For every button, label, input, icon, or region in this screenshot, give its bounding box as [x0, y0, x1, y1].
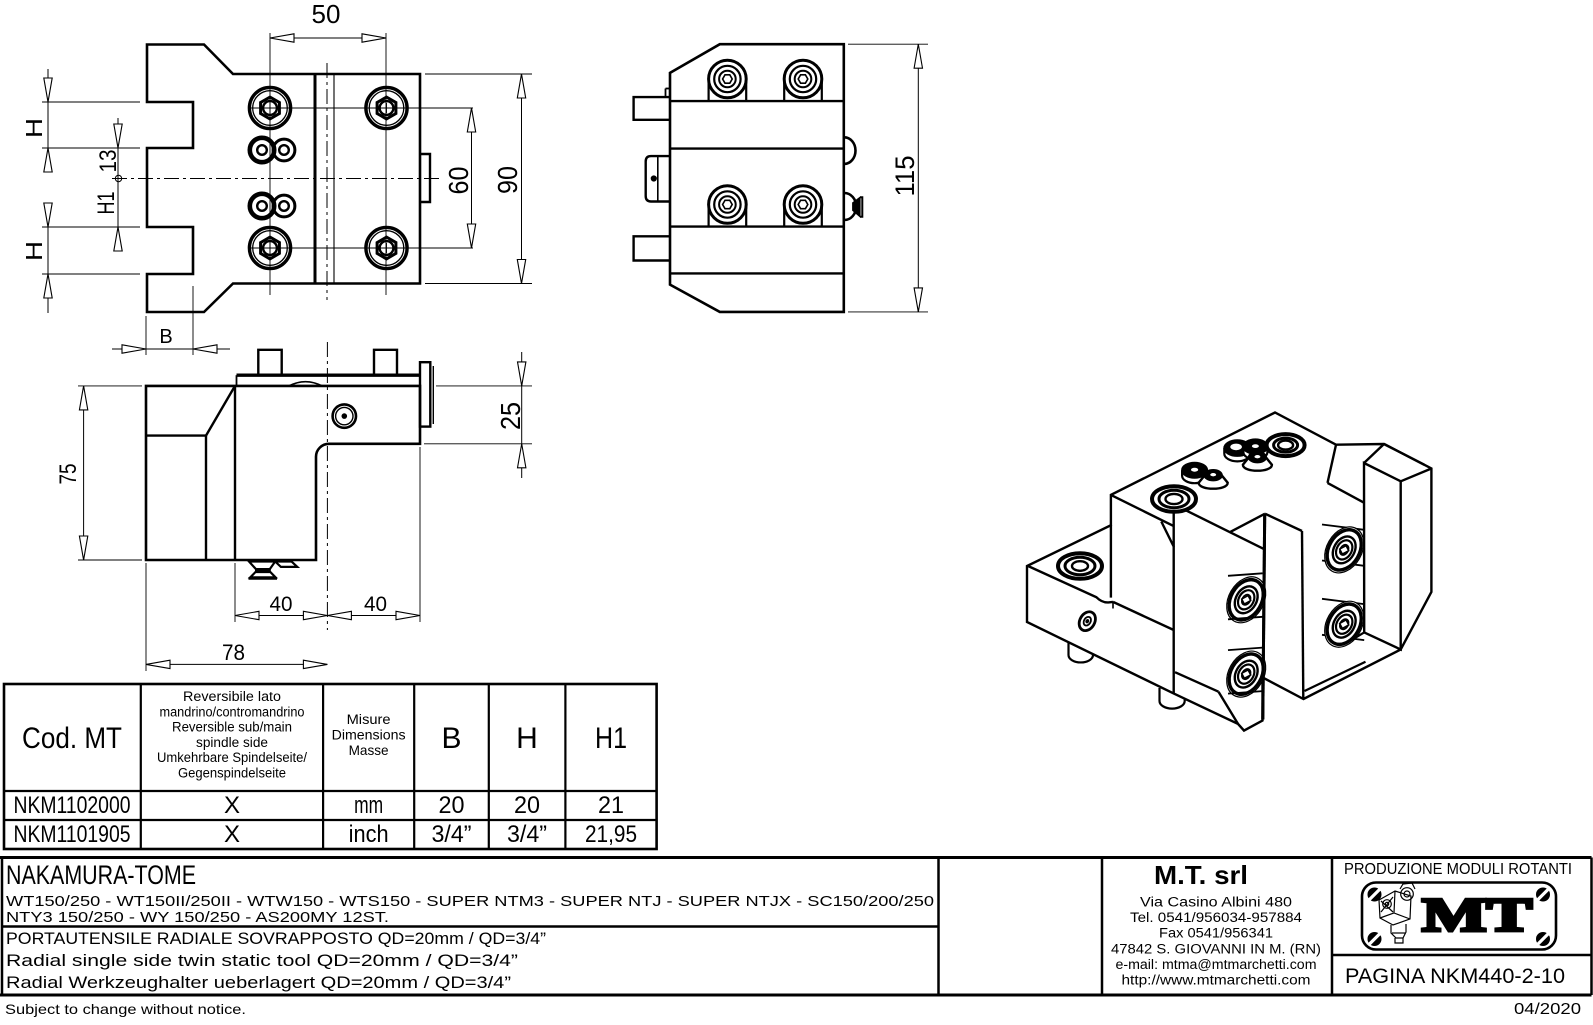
svg-text:21,95: 21,95 [585, 821, 637, 848]
svg-text:78: 78 [222, 640, 245, 665]
svg-text:Radial single side twin static: Radial single side twin static tool QD=2… [6, 951, 518, 970]
svg-text:e-mail: mtma@mtmarchetti.com: e-mail: mtma@mtmarchetti.com [1116, 957, 1317, 972]
svg-text:H: H [21, 118, 47, 138]
svg-text:H: H [21, 241, 47, 261]
svg-text:3/4”: 3/4” [507, 821, 547, 848]
svg-text:inch: inch [349, 821, 389, 848]
svg-text:H: H [516, 722, 538, 755]
svg-text:MT: MT [1422, 889, 1532, 942]
svg-text:http://www.mtmarchetti.com: http://www.mtmarchetti.com [1122, 973, 1311, 988]
svg-text:H1: H1 [93, 192, 120, 215]
svg-text:Via Casino Albini 480: Via Casino Albini 480 [1140, 895, 1292, 910]
svg-text:M.T. srl: M.T. srl [1154, 860, 1248, 890]
svg-text:20: 20 [514, 792, 540, 819]
svg-text:NAKAMURA-TOME: NAKAMURA-TOME [6, 860, 196, 890]
svg-text:Umkehrbare Spindelseite/: Umkehrbare Spindelseite/ [157, 750, 307, 765]
svg-text:H1: H1 [595, 722, 627, 755]
svg-text:PAGINA NKM440-2-10: PAGINA NKM440-2-10 [1345, 965, 1565, 988]
svg-text:40: 40 [364, 593, 387, 616]
svg-text:13: 13 [95, 150, 122, 173]
svg-text:20: 20 [439, 792, 465, 819]
svg-text:21: 21 [598, 792, 624, 819]
svg-text:Gegenspindelseite: Gegenspindelseite [178, 766, 286, 781]
svg-text:PRODUZIONE MODULI ROTANTI: PRODUZIONE MODULI ROTANTI [1344, 861, 1572, 878]
svg-text:Cod. MT: Cod. MT [22, 722, 122, 755]
svg-text:47842 S. GIOVANNI IN M. (RN): 47842 S. GIOVANNI IN M. (RN) [1111, 941, 1321, 956]
svg-text:X: X [224, 821, 240, 848]
svg-text:50: 50 [312, 0, 341, 29]
svg-text:B: B [159, 326, 172, 348]
svg-text:Masse: Masse [349, 742, 389, 758]
svg-text:Reversibile lato: Reversibile lato [183, 689, 281, 704]
svg-text:Tel. 0541/956034-957884: Tel. 0541/956034-957884 [1130, 910, 1303, 925]
svg-text:mm: mm [354, 792, 383, 819]
svg-text:60: 60 [443, 167, 474, 195]
svg-text:75: 75 [55, 464, 82, 485]
svg-text:WT150/250 - WT150II/250II - WT: WT150/250 - WT150II/250II - WTW150 - WTS… [6, 893, 934, 910]
svg-text:Radial Werkzeughalter ueberlag: Radial Werkzeughalter ueberlagert QD=20m… [6, 973, 511, 992]
svg-text:spindle side: spindle side [196, 735, 268, 750]
svg-text:40: 40 [270, 593, 293, 616]
svg-text:115: 115 [890, 156, 920, 197]
svg-text:04/2020: 04/2020 [1514, 1001, 1581, 1018]
svg-text:Reversible sub/main: Reversible sub/main [172, 720, 292, 735]
svg-text:B: B [441, 722, 461, 755]
svg-text:Subject to change without noti: Subject to change without notice. [5, 1001, 246, 1017]
svg-text:X: X [224, 792, 240, 819]
svg-text:mandrino/contromandrino: mandrino/contromandrino [160, 704, 305, 719]
svg-text:Dimensions: Dimensions [332, 727, 406, 743]
svg-text:90: 90 [492, 166, 523, 194]
svg-text:NKM1102000: NKM1102000 [14, 792, 131, 819]
svg-text:PORTAUTENSILE RADIALE SOVRAPPO: PORTAUTENSILE RADIALE SOVRAPPOSTO QD=20m… [6, 929, 546, 948]
svg-text:Fax 0541/956341: Fax 0541/956341 [1159, 926, 1273, 941]
svg-text:NTY3 150/250 - WY 150/250 - AS: NTY3 150/250 - WY 150/250 - AS200MY 12ST… [6, 909, 389, 926]
svg-text:25: 25 [495, 402, 526, 430]
svg-text:Misure: Misure [347, 711, 391, 727]
svg-text:3/4”: 3/4” [432, 821, 472, 848]
svg-text:NKM1101905: NKM1101905 [14, 821, 131, 848]
